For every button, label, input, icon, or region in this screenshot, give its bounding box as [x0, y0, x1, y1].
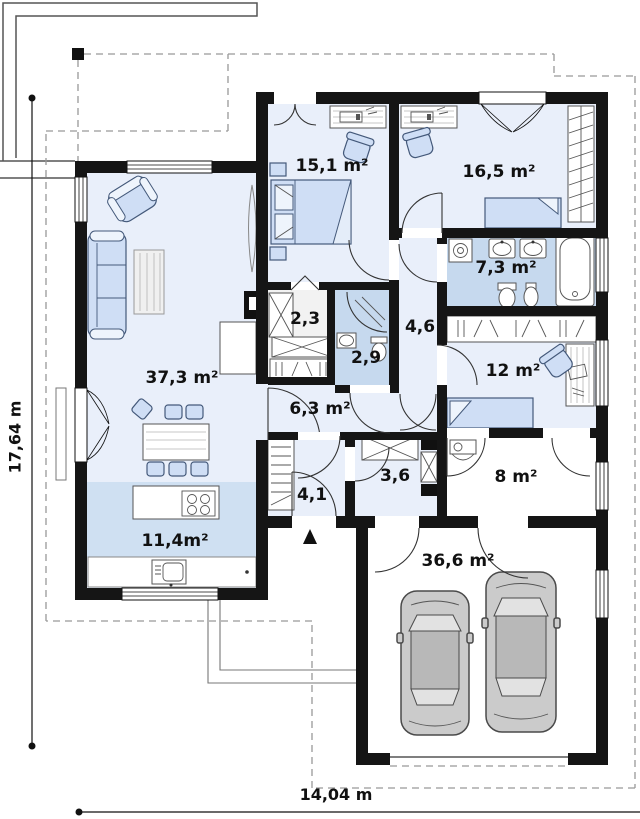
dining-chair: [191, 462, 208, 476]
bed: [485, 198, 561, 228]
corridor-closet-band: [447, 316, 596, 342]
small-sink: [337, 333, 356, 348]
garage-window: [596, 570, 608, 618]
room-label-living-room: 37,3 m²: [145, 368, 218, 388]
room-label-utility-room: 3,6: [380, 466, 410, 486]
bed: [271, 180, 351, 244]
kitchen-island: [133, 486, 219, 519]
kitchen-counter: [88, 557, 256, 587]
dimension-height: 17,64 m: [6, 95, 36, 750]
corner-marker: [72, 48, 84, 60]
washing-machine: [449, 239, 472, 262]
room-label-closet: 2,3: [290, 309, 320, 329]
sofa: [88, 231, 126, 339]
kitchen-window: [122, 588, 218, 600]
nightstand: [270, 163, 286, 176]
room-label-bathroom: 7,3 m²: [475, 258, 536, 278]
room-label-garage: 36,6 m²: [421, 551, 494, 571]
wardrobe: [568, 106, 594, 222]
entrance-wardrobe: [268, 439, 294, 510]
coffee-table: [134, 250, 164, 314]
car-right: [482, 572, 560, 732]
dining-table: [143, 424, 209, 460]
dimension-width: 14,04 m: [76, 785, 640, 816]
room-label-storage-room: 8 m²: [495, 467, 538, 487]
room-label-hall: 6,3 m²: [289, 399, 350, 419]
nightstand: [270, 247, 286, 260]
room-label-corridor: 4,6: [405, 317, 435, 337]
desk: [566, 344, 594, 406]
height-dimension-label: 17,64 m: [6, 401, 25, 474]
width-dimension-label: 14,04 m: [300, 785, 373, 804]
living-room-left-window: [75, 177, 87, 222]
floor-plan-drawing: 17,64 m 14,04 m: [0, 0, 640, 819]
bathroom-sink: [520, 239, 546, 258]
room-label-kitchen: 11,4m²: [141, 531, 208, 551]
hall-opening-floor: [256, 384, 268, 440]
floor-plan-page: 17,64 m 14,04 m: [0, 0, 640, 819]
room-label-entrance-hall: 4,1: [297, 485, 327, 505]
dining-chair: [169, 462, 186, 476]
bedroom-3-window: [596, 340, 608, 406]
toilet: [498, 283, 516, 308]
roof-eaves-lines: [0, 3, 257, 178]
room-label-shower-room: 2,9: [351, 348, 381, 368]
tv-cabinet: [220, 322, 256, 374]
dining-chair: [165, 405, 182, 419]
garage-gate: [390, 753, 568, 766]
room-label-bedroom-1: 15,1 m²: [295, 156, 368, 176]
dining-chair: [186, 405, 203, 419]
car-left: [397, 591, 473, 735]
room-label-bedroom-2: 16,5 m²: [462, 162, 535, 182]
dining-chair: [147, 462, 164, 476]
bed: [447, 398, 533, 428]
bidet: [524, 283, 538, 307]
bathtub: [556, 234, 594, 306]
room-label-bedroom-3: 12 m²: [486, 361, 541, 381]
storage-window: [596, 462, 608, 510]
terrace-step: [56, 388, 66, 480]
bathroom-sink: [489, 239, 515, 258]
bathroom-window: [596, 238, 608, 292]
living-room-top-window: [127, 161, 212, 173]
entrance-arrow: [303, 529, 317, 544]
